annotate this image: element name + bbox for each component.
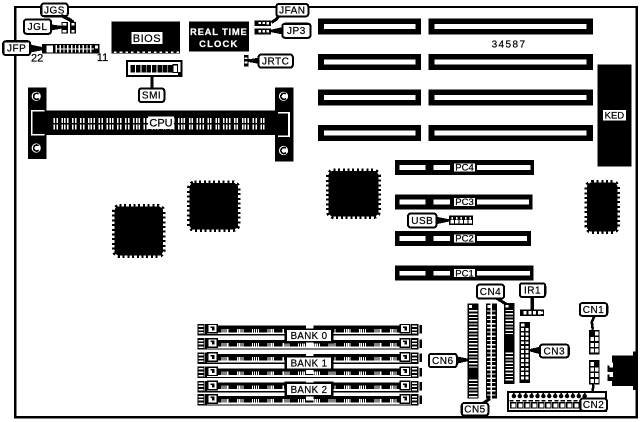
svg-text:CPU: CPU — [149, 118, 172, 130]
svg-text:CN4: CN4 — [480, 287, 502, 298]
svg-text:KED: KED — [605, 111, 625, 122]
svg-text:CN5: CN5 — [464, 405, 486, 416]
svg-text:PC4: PC4 — [455, 163, 473, 174]
svg-text:CN2: CN2 — [583, 400, 605, 411]
svg-text:PC2: PC2 — [455, 234, 473, 245]
svg-text:11: 11 — [97, 52, 108, 64]
svg-text:USB: USB — [411, 216, 433, 227]
svg-text:REAL TIME: REAL TIME — [190, 26, 248, 37]
svg-text:CLOCK: CLOCK — [199, 38, 238, 49]
svg-text:BIOS: BIOS — [133, 33, 161, 45]
svg-text:IR1: IR1 — [524, 286, 541, 297]
svg-text:CN3: CN3 — [544, 346, 566, 357]
svg-text:JFP: JFP — [7, 44, 26, 55]
svg-text:BANK 2: BANK 2 — [291, 385, 328, 396]
svg-text:JGL: JGL — [28, 22, 48, 33]
svg-text:JFAN: JFAN — [279, 6, 305, 17]
svg-text:PC1: PC1 — [455, 268, 473, 279]
svg-text:JRTC: JRTC — [262, 57, 289, 68]
svg-text:CN6: CN6 — [432, 356, 454, 367]
svg-text:CN1: CN1 — [583, 305, 605, 316]
svg-text:34587: 34587 — [492, 40, 527, 51]
svg-text:SMI: SMI — [142, 91, 161, 102]
svg-text:PC3: PC3 — [455, 197, 473, 208]
svg-text:JP3: JP3 — [287, 26, 306, 37]
svg-text:BANK 0: BANK 0 — [291, 331, 328, 342]
svg-text:BANK 1: BANK 1 — [291, 359, 328, 370]
svg-text:22: 22 — [31, 52, 43, 64]
